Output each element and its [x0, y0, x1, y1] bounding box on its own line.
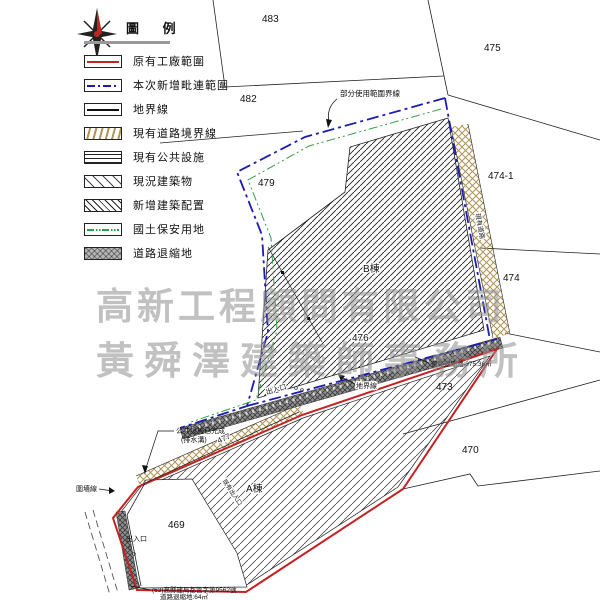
- legend-item-label: 道路退縮地: [133, 245, 193, 261]
- drain-double-line: [85, 510, 118, 595]
- parcel-line: [213, 0, 444, 87]
- legend-item-new-building-layout: 新增建築配置: [84, 197, 229, 213]
- legend-item-label: 本次新增毗連範圍: [133, 77, 229, 93]
- parcel-line: [448, 95, 600, 140]
- boundary-line-label: 地界線: [356, 381, 377, 390]
- parcel-label-482: 482: [240, 94, 257, 105]
- pubfac-done-label: 公共設施已完成: [176, 426, 225, 435]
- legend-item-label: 地界線: [133, 101, 169, 117]
- site-plan-page: { "legend": { "title": "圖 例", "items": […: [0, 0, 600, 600]
- parcel-label-470: 470: [462, 445, 479, 456]
- legend-item-existing-public-facility: 現有公共設施: [84, 149, 229, 165]
- parcel-label-469: 469: [168, 520, 185, 531]
- legend-item-label: 國土保安用地: [133, 221, 205, 237]
- blue-dashdot-line-swatch: [84, 79, 122, 92]
- parcel-label-479: 479: [258, 178, 275, 189]
- legend-title-rule: [84, 41, 170, 44]
- legend-item-original-factory: 原有工廠範圍: [84, 53, 229, 69]
- legend-title: 圖 例: [126, 18, 229, 37]
- parcel-label-476: 476: [352, 333, 369, 344]
- parcel-line: [480, 248, 600, 254]
- sparse-hatch-swatch: [84, 175, 122, 188]
- parcel-label-474: 474: [503, 273, 520, 284]
- legend-item-existing-road-boundary: 現有道路境界線: [84, 125, 229, 141]
- road-retreat-a-label: 道路退縮地:64㎡: [160, 592, 209, 600]
- legend-item-road-retreat-land: 道路退縮地: [84, 245, 229, 261]
- legend-item-label: 新增建築配置: [133, 197, 205, 213]
- legend-item-conservation-land: 國土保安用地: [84, 221, 229, 237]
- green-dashdot-line-swatch: [84, 223, 122, 236]
- legend-item-new-adjoining-area: 本次新增毗連範圍: [84, 77, 229, 93]
- dense-hatch-swatch: [84, 199, 122, 212]
- legend-item-label: 現有道路境界線: [133, 125, 217, 141]
- pubfac-done-label2: (排水溝): [181, 435, 207, 444]
- parcel-line: [403, 471, 600, 489]
- tan-road-hatch-swatch: [84, 127, 122, 140]
- parcel-line: [428, 0, 448, 95]
- permit-number-label: (63)高縣建局都管字第9562號: [152, 585, 237, 594]
- legend-item-label: 現況建築物: [133, 173, 193, 189]
- wall-line-label: 圍墻線: [76, 484, 97, 493]
- horizontal-lines-swatch: [84, 151, 122, 164]
- parcel-label-474-1: 474-1: [488, 171, 514, 182]
- gray-crosshatch-swatch: [84, 247, 122, 260]
- red-solid-line-swatch: [84, 55, 122, 68]
- legend-item-label: 現有公共設施: [133, 149, 205, 165]
- building-a-label: A棟: [246, 482, 263, 495]
- entrance-a-label: 出入口: [126, 534, 147, 543]
- legend-item-land-boundary: 地界線: [84, 101, 229, 117]
- legend: 圖 例 原有工廠範圍 本次新增毗連範圍 地界線 現有道路境界線 現有公共設施 現…: [84, 18, 229, 269]
- partial-use-label: 部分使用範圍界線: [340, 88, 400, 98]
- legend-item-existing-building: 現況建築物: [84, 173, 229, 189]
- parcel-line: [505, 333, 600, 352]
- road-retreat-b-label: 道路退縮地:375.36㎡: [431, 359, 492, 368]
- black-solid-line-swatch: [84, 103, 122, 116]
- parcel-label-483: 483: [262, 14, 279, 25]
- building-b-label: B棟: [363, 262, 380, 275]
- parcel-label-475: 475: [484, 43, 501, 54]
- legend-item-label: 原有工廠範圍: [133, 53, 205, 69]
- parcel-label-473: 473: [436, 382, 453, 393]
